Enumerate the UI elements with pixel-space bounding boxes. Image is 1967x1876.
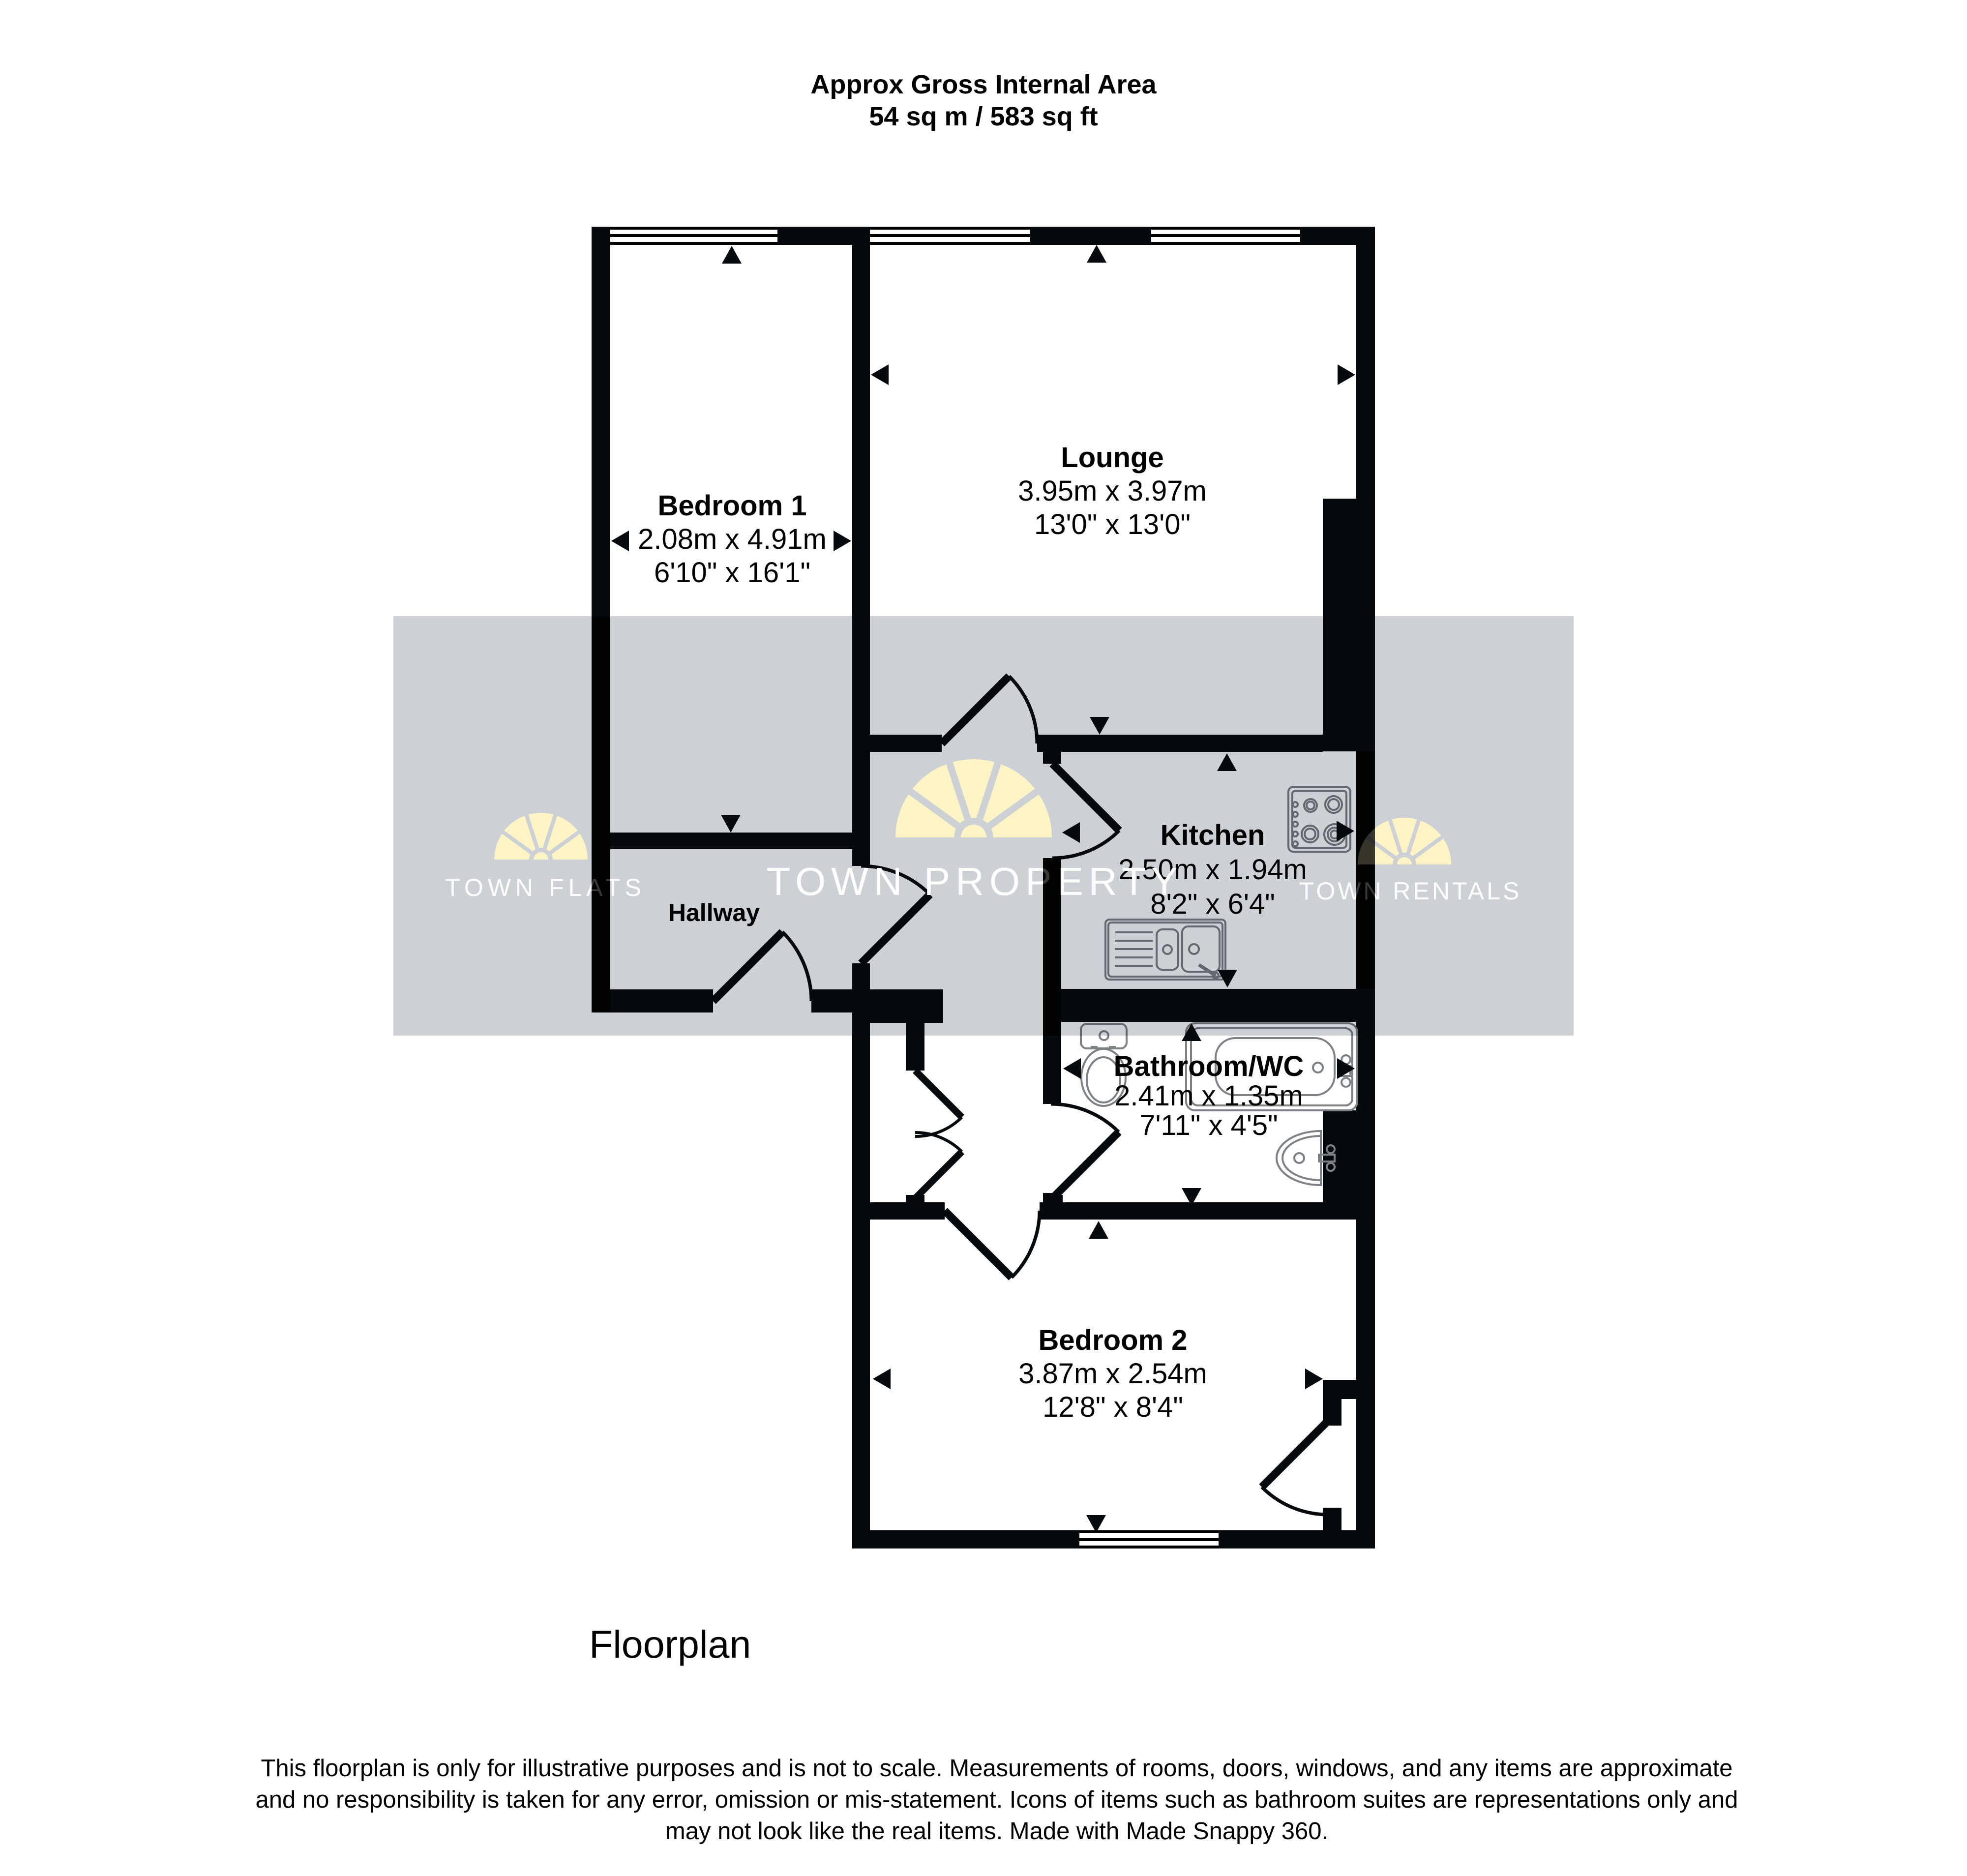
svg-text:2.41m x 1.35m: 2.41m x 1.35m <box>1114 1080 1303 1112</box>
svg-text:7'11" x 4'5": 7'11" x 4'5" <box>1139 1109 1278 1141</box>
svg-text:3.95m x 3.97m: 3.95m x 3.97m <box>1018 475 1207 507</box>
svg-text:may not look like the real ite: may not look like the real items. Made w… <box>665 1818 1328 1845</box>
svg-text:Bedroom 2: Bedroom 2 <box>1039 1324 1188 1356</box>
svg-text:TOWN PROPERTY: TOWN PROPERTY <box>767 860 1183 903</box>
svg-text:and no responsibility is taken: and no responsibility is taken for any e… <box>256 1787 1738 1813</box>
svg-text:3.87m x 2.54m: 3.87m x 2.54m <box>1018 1358 1207 1390</box>
svg-text:This floorplan is only for ill: This floorplan is only for illustrative … <box>261 1755 1732 1782</box>
svg-text:Lounge: Lounge <box>1061 442 1163 474</box>
svg-text:Bedroom 1: Bedroom 1 <box>658 490 807 522</box>
svg-text:TOWN FLATS: TOWN FLATS <box>445 874 646 901</box>
svg-text:6'10" x 16'1": 6'10" x 16'1" <box>654 557 810 589</box>
svg-text:13'0" x 13'0": 13'0" x 13'0" <box>1034 508 1191 540</box>
svg-text:TOWN RENTALS: TOWN RENTALS <box>1299 877 1522 905</box>
svg-text:2.08m x 4.91m: 2.08m x 4.91m <box>638 523 827 555</box>
svg-text:12'8" x 8'4": 12'8" x 8'4" <box>1043 1391 1183 1423</box>
svg-text:Approx Gross Internal Area: Approx Gross Internal Area <box>810 70 1157 99</box>
svg-text:54 sq m / 583 sq ft: 54 sq m / 583 sq ft <box>869 102 1098 131</box>
svg-text:Floorplan: Floorplan <box>589 1622 751 1666</box>
svg-text:Bathroom/WC: Bathroom/WC <box>1114 1050 1304 1082</box>
